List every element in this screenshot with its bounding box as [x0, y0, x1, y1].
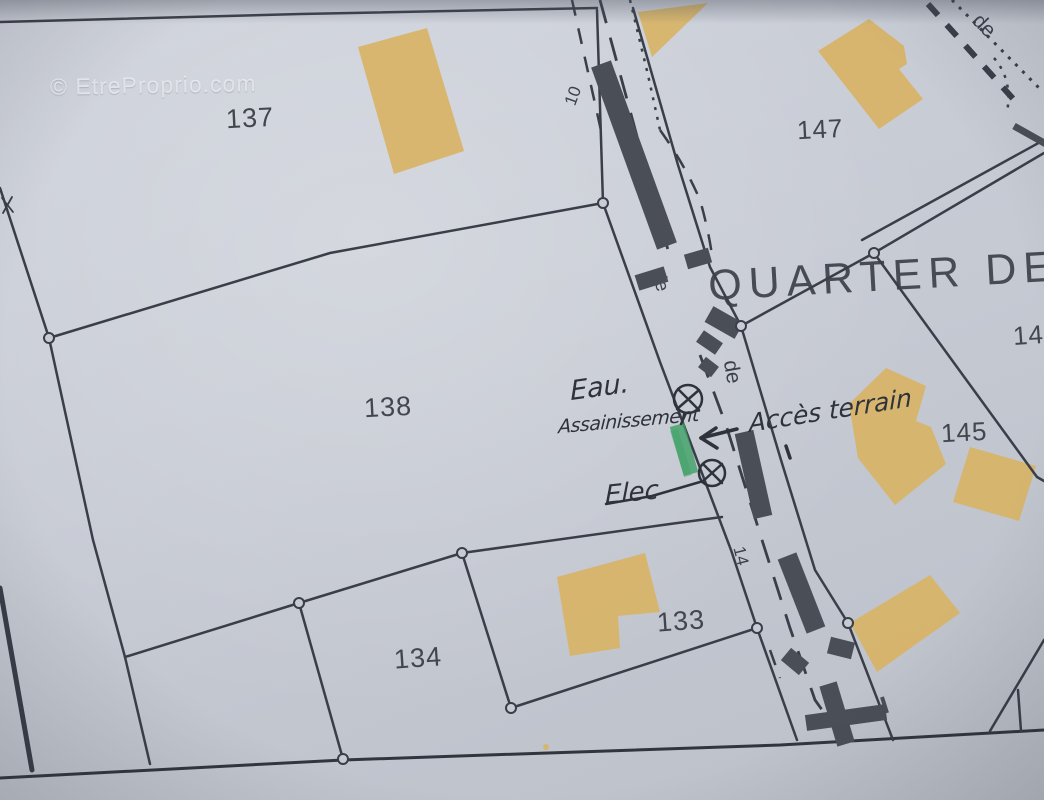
parcel-label-14-cutoff: 14 — [1012, 319, 1044, 352]
annotation-water: Eau. — [570, 368, 630, 407]
street-particle-mid: de — [646, 268, 672, 294]
annotation-electricity: Elec — [605, 475, 659, 511]
street-particle-corner: de — [967, 9, 1000, 42]
utility-marker-2-icon — [699, 460, 725, 486]
parcel-label-145: 145 — [940, 416, 988, 449]
building-bottom-right — [850, 575, 960, 672]
green-highlight-marker — [674, 425, 691, 476]
building-parcel-137 — [358, 28, 464, 174]
parcel-label-137: 137 — [225, 102, 275, 135]
building-parcel-133 — [557, 553, 660, 656]
cadastral-map-photo: 137 147 138 145 134 133 14 QUARTER DE LA… — [0, 0, 1044, 800]
road-edges — [597, 8, 893, 740]
parcel-label-134: 134 — [393, 641, 443, 675]
building-road-top — [638, 3, 708, 57]
annotation-access: Accès terrain — [749, 383, 912, 438]
street-particle-lower: de — [718, 358, 746, 385]
road-width-label-bottom: 14 — [728, 544, 752, 567]
building-parcel-145-small — [953, 447, 1036, 521]
parcel-label-138: 138 — [363, 391, 413, 424]
watermark: © EtreProprio.com — [50, 70, 257, 101]
annotation-sewer: Assainissement — [558, 404, 700, 438]
left-edge-tick-icon — [2, 197, 13, 213]
paper-smudge — [543, 744, 549, 750]
road-centerline-dashes — [572, 0, 840, 735]
street-name-label: QUARTER DE LA — [707, 238, 1044, 311]
parcel-label-133: 133 — [656, 604, 706, 638]
road-width-label-top: 10 — [561, 84, 586, 109]
parcel-label-147: 147 — [796, 113, 844, 146]
